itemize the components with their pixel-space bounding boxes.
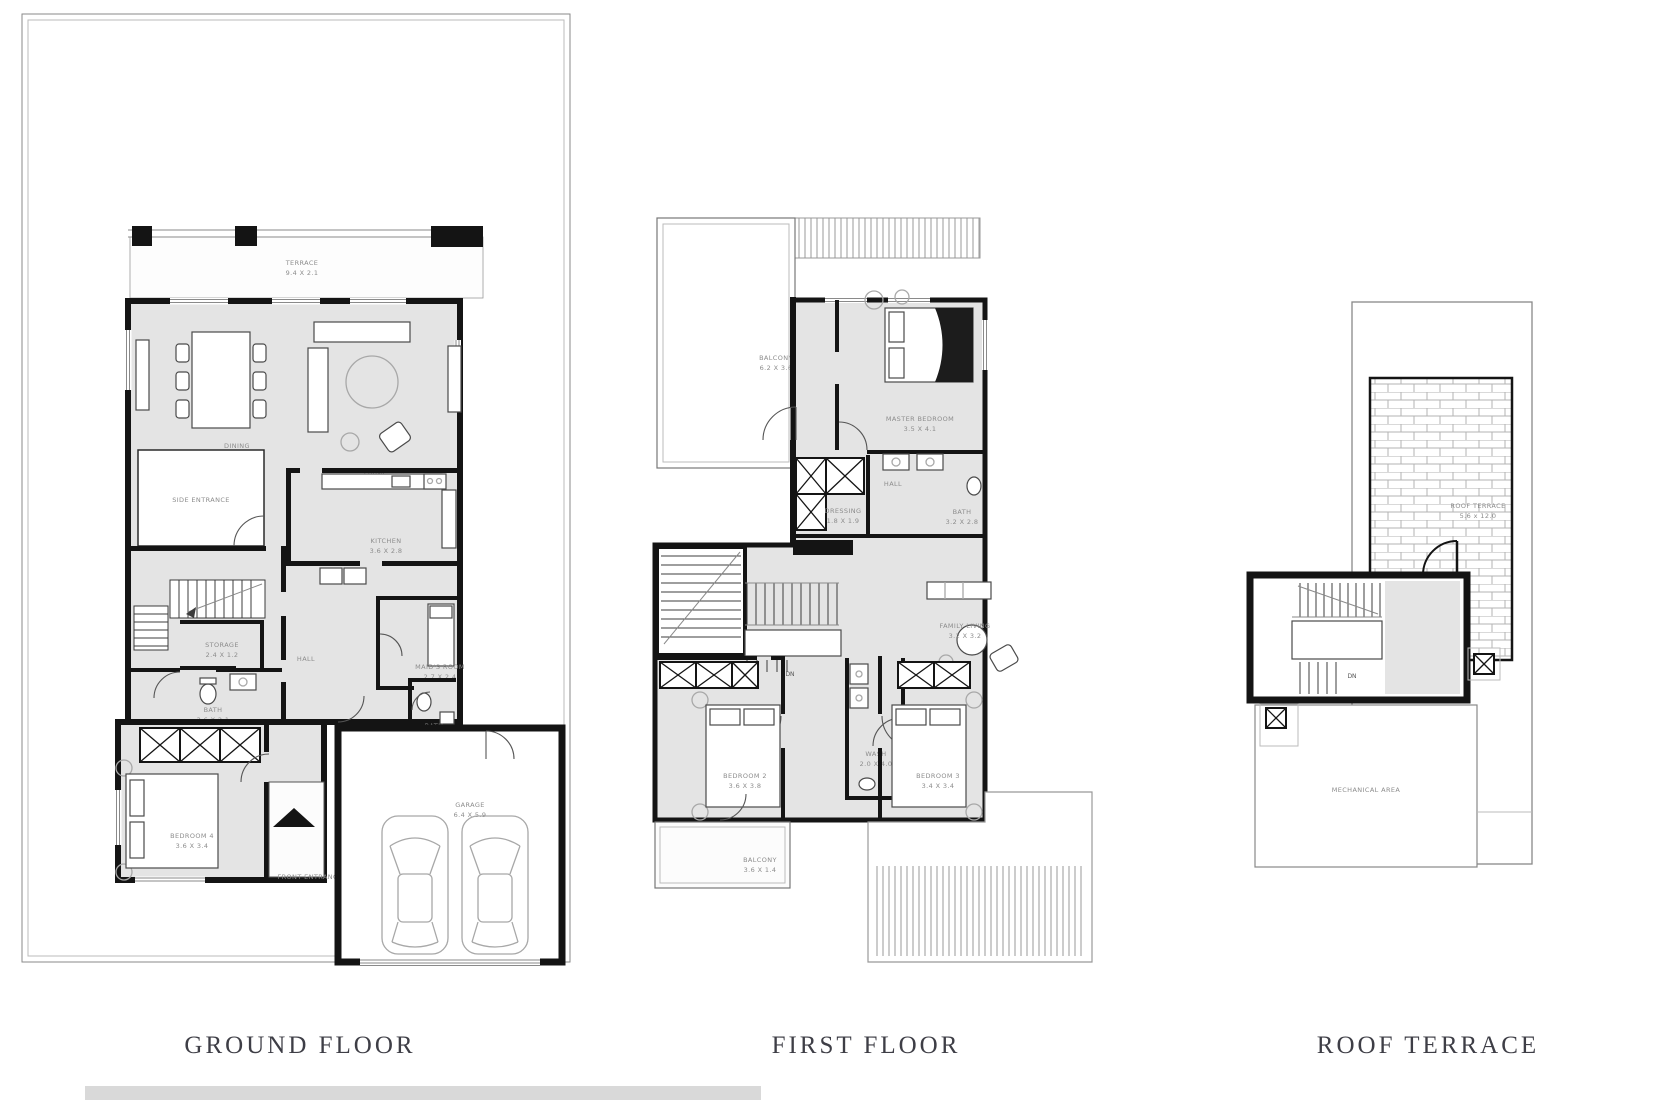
window-seat <box>448 346 461 412</box>
balcony1-dims: 6.2 X 3.6 <box>760 364 793 372</box>
roof-terrace-label: ROOF TERRACE <box>1450 502 1505 510</box>
toilet <box>200 684 216 704</box>
roof-terrace-dims: 5.6 x 12.0 <box>1460 512 1497 520</box>
sink <box>392 476 410 487</box>
dining-label: DINING <box>224 442 250 450</box>
bedroom3-dims: 3.4 X 3.4 <box>922 782 955 790</box>
stair-landing <box>745 630 841 656</box>
first-floor-plan: BALCONY 6.2 X 3.6 MASTER BEDROOM <box>640 200 1110 1020</box>
mechanical-area-label: MECHANICAL AREA <box>1332 786 1401 794</box>
master-dims: 3.5 X 4.1 <box>904 425 937 433</box>
stair-landing <box>1292 621 1382 659</box>
kitchen-label: KITCHEN <box>371 537 402 545</box>
sofa <box>314 322 410 342</box>
pillow <box>710 709 740 725</box>
fixture <box>850 664 868 684</box>
sofa <box>308 348 328 432</box>
dressing-label: DRESSING <box>825 507 862 515</box>
appliance <box>320 568 342 584</box>
terrace-dims: 9.4 X 2.1 <box>286 269 319 277</box>
wall <box>281 682 286 722</box>
sink <box>230 674 256 690</box>
pillow <box>889 312 904 342</box>
bottom-scroll-strip <box>85 1086 761 1100</box>
hall-label: HALL <box>297 655 315 663</box>
front-entrance: FRONT ENTRANCE <box>269 782 343 881</box>
terrace-label: TERRACE <box>285 259 319 267</box>
kitchen-dims: 3.6 X 2.8 <box>370 547 403 555</box>
dn-label: DN <box>785 671 794 678</box>
fixture <box>850 688 868 708</box>
pergola-slats <box>874 866 1086 956</box>
maids-room-label: MAID'S ROOM <box>415 663 465 671</box>
family-living-dims: 3.2 X 3.2 <box>949 632 982 640</box>
hall-label: HALL <box>884 480 902 488</box>
dining-table <box>192 332 250 428</box>
wash-label: WASH <box>865 750 886 758</box>
ground-terrace: TERRACE 9.4 X 2.1 <box>128 226 483 298</box>
bath1-label: BATH <box>204 706 223 714</box>
wall <box>281 546 286 592</box>
master-label: MASTER BEDROOM <box>886 415 954 423</box>
pillow <box>744 709 774 725</box>
sofa <box>927 582 991 599</box>
pillow <box>130 822 144 858</box>
window-seat <box>136 340 149 410</box>
side-entrance: SIDE ENTRANCE <box>138 450 264 546</box>
garage: GARAGE 6.4 X 5.9 <box>338 728 562 965</box>
pillow <box>896 709 926 725</box>
storage-label: STORAGE <box>205 641 239 649</box>
armchair <box>989 643 1020 672</box>
toilet <box>967 477 981 495</box>
balcony2-dims: 3.6 X 1.4 <box>744 866 777 874</box>
upper-balcony: BALCONY 6.2 X 3.6 <box>657 218 795 468</box>
side-entrance-label: SIDE ENTRANCE <box>172 496 230 504</box>
pillow <box>130 780 144 816</box>
wall <box>793 540 853 555</box>
ground-floor-plan: TERRACE 9.4 X 2.1 DINING 3.4 X 4.1 <box>20 10 580 1010</box>
garage-label: GARAGE <box>455 801 485 809</box>
balcony1-label: BALCONY <box>759 354 793 362</box>
wall <box>281 616 286 660</box>
pillow <box>430 606 452 618</box>
roof-terrace-caption: ROOF TERRACE <box>1218 1032 1638 1060</box>
floorplan-sheet: TERRACE 9.4 X 2.1 DINING 3.4 X 4.1 <box>0 0 1658 1100</box>
front-entrance-label: FRONT ENTRANCE <box>277 873 342 881</box>
dressing-dims: 1.8 X 1.9 <box>827 517 860 525</box>
bath-dims: 3.2 X 2.8 <box>946 518 979 526</box>
sink <box>917 454 943 470</box>
toilet <box>859 778 875 790</box>
pillow <box>889 348 904 378</box>
balcony2-label: BALCONY <box>743 856 777 864</box>
wash-dims: 2.0 X 4.0 <box>860 760 893 768</box>
roof-stairs: DN <box>1250 575 1467 700</box>
bedroom4-label: BEDROOM 4 <box>170 832 214 840</box>
wall <box>128 546 266 551</box>
storage-dims: 2.4 X 1.2 <box>206 651 239 659</box>
roof-terrace-plan: ROOF TERRACE 5.6 x 12.0 MECHANICAL AREA … <box>1180 280 1550 880</box>
appliance <box>344 568 366 584</box>
sink <box>883 454 909 470</box>
first-floor-caption: FIRST FLOOR <box>656 1032 1076 1060</box>
pillow <box>930 709 960 725</box>
bedroom2-dims: 3.6 X 3.8 <box>729 782 762 790</box>
kitchen-counter <box>442 490 456 548</box>
bedroom2-label: BEDROOM 2 <box>723 772 767 780</box>
ground-floor-caption: GROUND FLOOR <box>90 1032 510 1060</box>
bedroom4-dims: 3.6 X 3.4 <box>176 842 209 850</box>
dn-label: DN <box>1347 673 1356 680</box>
bath-label: BATH <box>953 508 972 516</box>
bedroom3-label: BEDROOM 3 <box>916 772 960 780</box>
family-living-label: FAMILY LIVING <box>940 622 991 630</box>
wall <box>790 297 796 407</box>
